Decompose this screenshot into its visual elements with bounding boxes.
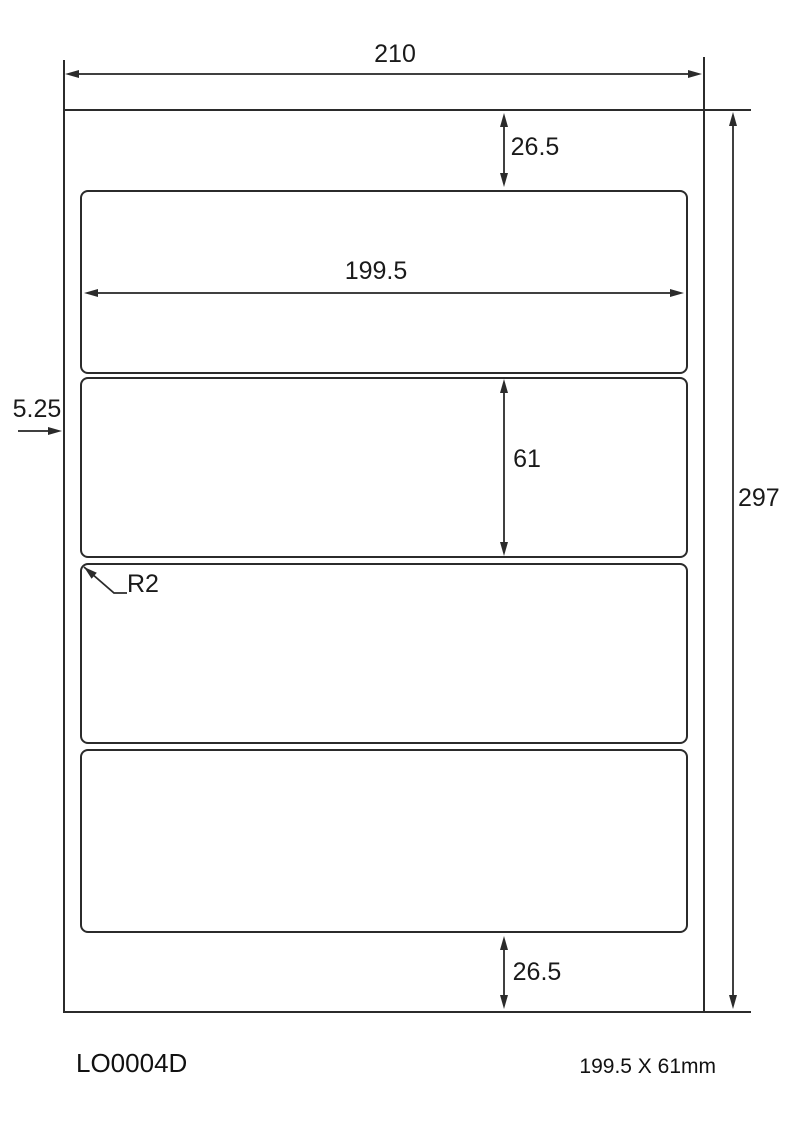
- sheet-height-dim-text: 297: [738, 485, 780, 513]
- label-height-dim-text: 61: [479, 446, 575, 474]
- corner-radius-leader: [84, 567, 127, 593]
- sheet-width-dim-text: 210: [345, 41, 445, 69]
- product-code-text: LO0004D: [76, 1048, 187, 1079]
- label-width-dim-text: 199.5: [328, 258, 424, 286]
- corner-radius-text: R2: [127, 571, 159, 599]
- dim-left-margin-arrow: [18, 427, 62, 435]
- bottom-margin-dim-text: 26.5: [489, 959, 585, 987]
- left-margin-dim-text: 5.25: [0, 396, 74, 424]
- dim-sheet-width-arrow: [65, 70, 702, 78]
- top-margin-dim-text: 26.5: [487, 134, 583, 162]
- dim-sheet-height-arrow: [729, 112, 737, 1009]
- label-size-text: 199.5 X 61mm: [536, 1055, 716, 1079]
- dimension-arrows: [0, 0, 796, 1124]
- label-sheet-diagram: 210 26.5 199.5 5.25 61 297 R2 26.5 LO000…: [0, 0, 796, 1124]
- dim-label-width-arrow: [84, 289, 684, 297]
